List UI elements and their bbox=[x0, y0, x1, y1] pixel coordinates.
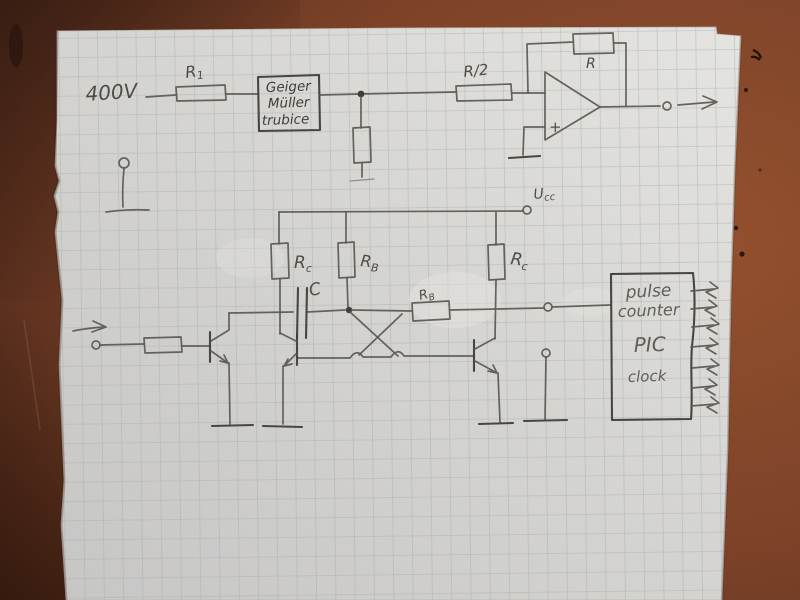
table-speck bbox=[758, 168, 761, 171]
opamp-plus-label: + bbox=[549, 118, 562, 136]
feedback-resistor-label: R bbox=[586, 56, 596, 72]
table-speck bbox=[744, 88, 748, 92]
table-speck bbox=[739, 251, 744, 256]
output-wire bbox=[600, 106, 660, 107]
pic-label-line2: counter bbox=[617, 300, 681, 321]
table-stain bbox=[9, 24, 23, 68]
ground-symbol bbox=[263, 426, 302, 427]
wire bbox=[229, 363, 230, 424]
supply-voltage-label: 400V bbox=[85, 78, 140, 106]
pic-label-line3: PIC bbox=[633, 332, 666, 357]
divider-resistor-label: R/2 bbox=[463, 60, 490, 81]
pic-label-line4: clock bbox=[628, 367, 668, 386]
paper-sheet: 400V R1 Geiger Müller trubice bbox=[40, 15, 760, 600]
wire bbox=[352, 310, 412, 311]
wire bbox=[347, 278, 348, 307]
vcc-rail bbox=[279, 211, 523, 212]
geiger-tube-label-line1: Geiger bbox=[266, 78, 313, 96]
geiger-tube-label-line3: trubice bbox=[262, 111, 310, 129]
geiger-tube-label-line2: Müller bbox=[268, 95, 312, 112]
ground-symbol bbox=[479, 423, 513, 424]
wire bbox=[545, 357, 546, 419]
photo-of-schematic: 400V R1 Geiger Müller trubice bbox=[0, 0, 800, 600]
ground-symbol bbox=[212, 425, 253, 426]
wire bbox=[100, 344, 144, 345]
eraser-smudge bbox=[562, 288, 618, 316]
ground-symbol bbox=[524, 420, 567, 421]
